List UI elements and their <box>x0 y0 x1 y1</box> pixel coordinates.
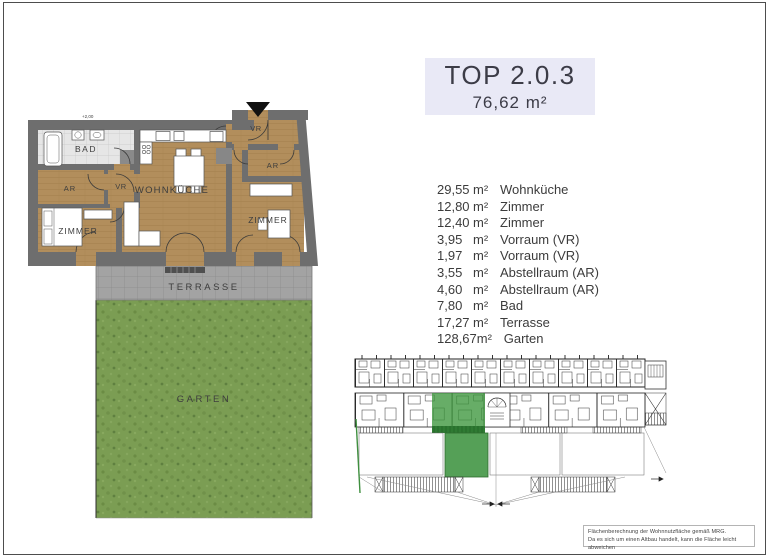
room-label-vr-right: VR <box>250 124 262 133</box>
room-area-value: 128,67 <box>437 331 477 348</box>
room-area-unit: m² <box>473 315 500 332</box>
area-list: 29,55m²Wohnküche12,80m²Zimmer12,40m²Zimm… <box>437 182 599 348</box>
room-area-unit: m² <box>473 248 500 265</box>
room-label-zimmer-right: ZIMMER <box>248 215 288 225</box>
room-name: Terrasse <box>500 315 550 332</box>
siteplan-neighbor-gardens <box>359 427 644 475</box>
dresser-icon <box>84 210 112 219</box>
room-label-ar-right: AR <box>267 161 279 170</box>
room-area-unit: m² <box>477 331 504 348</box>
room-label-zimmer-left: ZIMMER <box>58 226 98 236</box>
sink-icon <box>90 130 104 140</box>
room-label-bad: BAD <box>75 144 97 154</box>
unit-title: TOP 2.0.3 <box>444 60 575 91</box>
title-box: TOP 2.0.3 76,62 m² <box>425 58 595 115</box>
room-area-value: 3,95 <box>437 232 473 249</box>
siteplan-lower-row <box>355 393 645 427</box>
room-area-unit: m² <box>473 215 500 232</box>
siteplan-upper-building <box>355 355 645 387</box>
room-area-value: 1,97 <box>437 248 473 265</box>
siteplan-highlighted-garden <box>445 433 488 477</box>
room-label-wohnkueche: WOHNKÜCHE <box>135 185 209 196</box>
siteplan-pergolas <box>375 477 615 492</box>
room-label-ar-left: AR <box>64 184 76 193</box>
garden-area: GARTEN <box>96 300 312 518</box>
room-area-value: 3,55 <box>437 265 473 282</box>
floorplan-sheet: GARTEN TERRASSE <box>0 0 770 558</box>
terrace-label: TERRASSE <box>168 282 239 293</box>
room-area-unit: m² <box>473 282 500 299</box>
room-area-value: 7,80 <box>437 298 473 315</box>
area-row: 128,67m²Garten <box>437 331 599 348</box>
area-row: 1,97m²Vorraum (VR) <box>437 248 599 265</box>
room-area-value: 12,40 <box>437 215 473 232</box>
apartment-floorplan: GARTEN TERRASSE <box>20 100 320 525</box>
room-area-unit: m² <box>473 199 500 216</box>
siteplan-highlighted-unit <box>432 393 488 477</box>
room-name: Garten <box>504 331 544 348</box>
unit-total-area: 76,62 m² <box>472 93 547 113</box>
bathtub-icon <box>44 132 62 166</box>
siteplan-boundary-lines <box>359 427 666 507</box>
room-area-value: 12,80 <box>437 199 473 216</box>
terrace-area: TERRASSE <box>96 266 312 300</box>
room-area-value: 17,27 <box>437 315 473 332</box>
level-annotation: +2,00 <box>82 114 94 119</box>
room-area-value: 4,60 <box>437 282 473 299</box>
room-name: Vorraum (VR) <box>500 232 579 249</box>
area-row: 7,80m²Bad <box>437 298 599 315</box>
room-name: Zimmer <box>500 215 544 232</box>
room-name: Abstellraum (AR) <box>500 282 599 299</box>
area-row: 3,55m²Abstellraum (AR) <box>437 265 599 282</box>
wardrobe-icon <box>250 184 292 196</box>
room-name: Vorraum (VR) <box>500 248 579 265</box>
room-area-unit: m² <box>473 298 500 315</box>
footnote-line1: Flächenberechnung der Wohnnutzfläche gem… <box>588 528 750 536</box>
washer-icon <box>72 130 84 140</box>
site-plan <box>353 355 668 515</box>
footnote-line2: Da es sich um einen Altbau handelt, kann… <box>588 536 750 552</box>
area-row: 3,95m²Vorraum (VR) <box>437 232 599 249</box>
room-name: Zimmer <box>500 199 544 216</box>
room-label-vr-left: VR <box>115 182 127 191</box>
room-area-unit: m² <box>473 265 500 282</box>
area-row: 29,55m²Wohnküche <box>437 182 599 199</box>
area-row: 4,60m²Abstellraum (AR) <box>437 282 599 299</box>
room-name: Abstellraum (AR) <box>500 265 599 282</box>
siteplan-stairwell <box>484 393 510 427</box>
room-area-value: 29,55 <box>437 182 473 199</box>
room-area-unit: m² <box>473 232 500 249</box>
room-name: Bad <box>500 298 523 315</box>
area-row: 12,80m²Zimmer <box>437 199 599 216</box>
room-name: Wohnküche <box>500 182 568 199</box>
footnote-box: Flächenberechnung der Wohnnutzfläche gem… <box>583 525 755 547</box>
room-area-unit: m² <box>473 182 500 199</box>
siteplan-right-wing <box>645 361 666 425</box>
area-row: 12,40m²Zimmer <box>437 215 599 232</box>
area-row: 17,27m²Terrasse <box>437 315 599 332</box>
garden-label: GARTEN <box>177 394 231 405</box>
